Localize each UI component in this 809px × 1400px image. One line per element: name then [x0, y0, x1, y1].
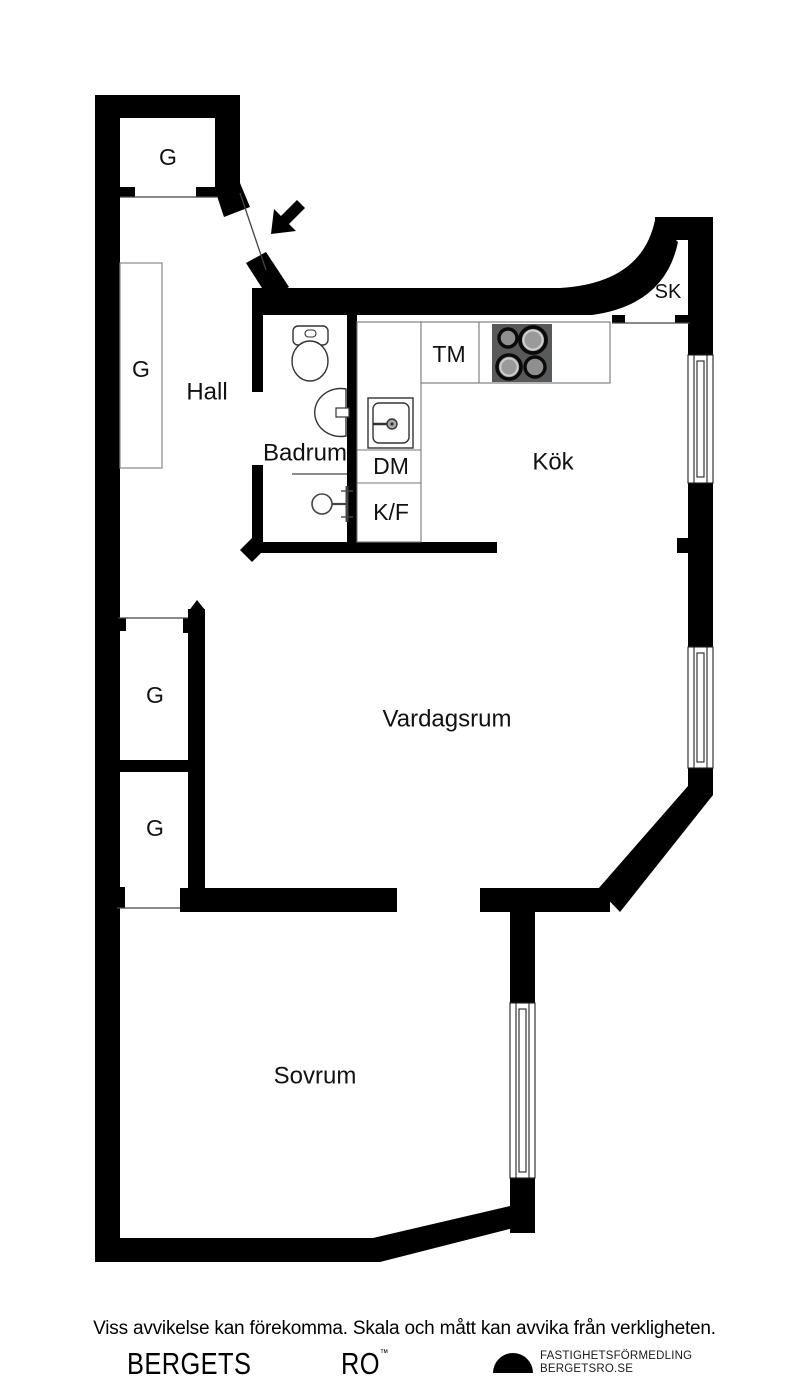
label-wardrobe-mid2: G — [146, 815, 164, 841]
entrance-door-line — [240, 193, 266, 270]
agency-line1: FASTIGHETSFÖRMEDLING — [540, 1350, 692, 1363]
kitchen-sink-icon — [368, 398, 413, 448]
floor-plan-drawing: G G Hall Badrum TM DM K/F Kök SK G G Var… — [0, 0, 809, 1300]
brand-ro: RO™ — [341, 1349, 388, 1379]
wall-closets-tip — [188, 600, 205, 618]
wall-bath-west-upper — [252, 288, 263, 392]
trademark-symbol: ™ — [380, 1348, 388, 1359]
stove-icon — [492, 324, 552, 382]
wall-kitchen-north — [252, 288, 592, 315]
label-kitchen: Kök — [532, 449, 574, 476]
label-living-room: Vardagsrum — [383, 706, 512, 733]
wall-east-middle — [688, 483, 713, 647]
door-jamb — [612, 315, 625, 323]
label-hall: Hall — [186, 379, 227, 406]
wall-top-closet-east — [215, 118, 250, 217]
window-kitchen-east — [688, 355, 713, 483]
wall-diagonal-bedroom — [373, 1206, 533, 1262]
wall-stub-kitchen-living — [677, 538, 688, 553]
door-jamb — [196, 187, 218, 197]
agency-text: FASTIGHETSFÖRMEDLING BERGETSRO.SE — [540, 1350, 692, 1375]
label-cabinet: SK — [655, 281, 682, 303]
floor-plan-page: G G Hall Badrum TM DM K/F Kök SK G G Var… — [0, 0, 809, 1400]
wall-bath-south — [250, 542, 497, 553]
window-bedroom-east — [510, 1003, 535, 1178]
washbasin-icon — [315, 389, 349, 437]
wall-diagonal-living — [598, 786, 713, 912]
label-wardrobe-mid1: G — [146, 682, 164, 708]
wall-closets-east — [188, 609, 205, 888]
agency-line2: BERGETSRO.SE — [540, 1363, 692, 1376]
wall-south — [95, 1238, 380, 1262]
label-wardrobe-top: G — [159, 144, 177, 170]
wall-closets-divider — [120, 760, 205, 772]
shower-icon — [312, 486, 353, 522]
window-living-east — [688, 647, 713, 768]
door-jamb — [675, 315, 689, 323]
agency-logo-icon — [493, 1353, 533, 1373]
disclaimer-text: Viss avvikelse kan förekomma. Skala och … — [0, 1316, 809, 1342]
wall-bath-west-lower — [252, 465, 263, 542]
door-jamb — [118, 618, 126, 631]
label-dishwasher: DM — [373, 453, 409, 479]
wall-bedroom-east-upper — [510, 888, 535, 1003]
wall-west — [95, 95, 120, 1262]
label-fridge-freezer: K/F — [373, 499, 409, 525]
walls — [95, 95, 713, 1262]
wall-living-south-right — [480, 888, 610, 912]
door-jamb — [120, 187, 135, 197]
label-bedroom: Sovrum — [274, 1063, 357, 1090]
label-bathroom: Badrum — [263, 440, 347, 467]
wall-east-upper — [688, 217, 713, 355]
brand-bergets: BERGETS — [127, 1349, 251, 1379]
entrance-arrow-icon — [271, 200, 305, 234]
brand-ro-text: RO — [341, 1346, 380, 1381]
door-jamb — [117, 887, 125, 908]
label-wardrobe-hall: G — [132, 356, 150, 382]
wall-living-south-left — [180, 888, 397, 912]
label-washing-machine: TM — [432, 341, 465, 367]
toilet-icon — [292, 326, 328, 381]
door-jamb — [183, 618, 200, 633]
